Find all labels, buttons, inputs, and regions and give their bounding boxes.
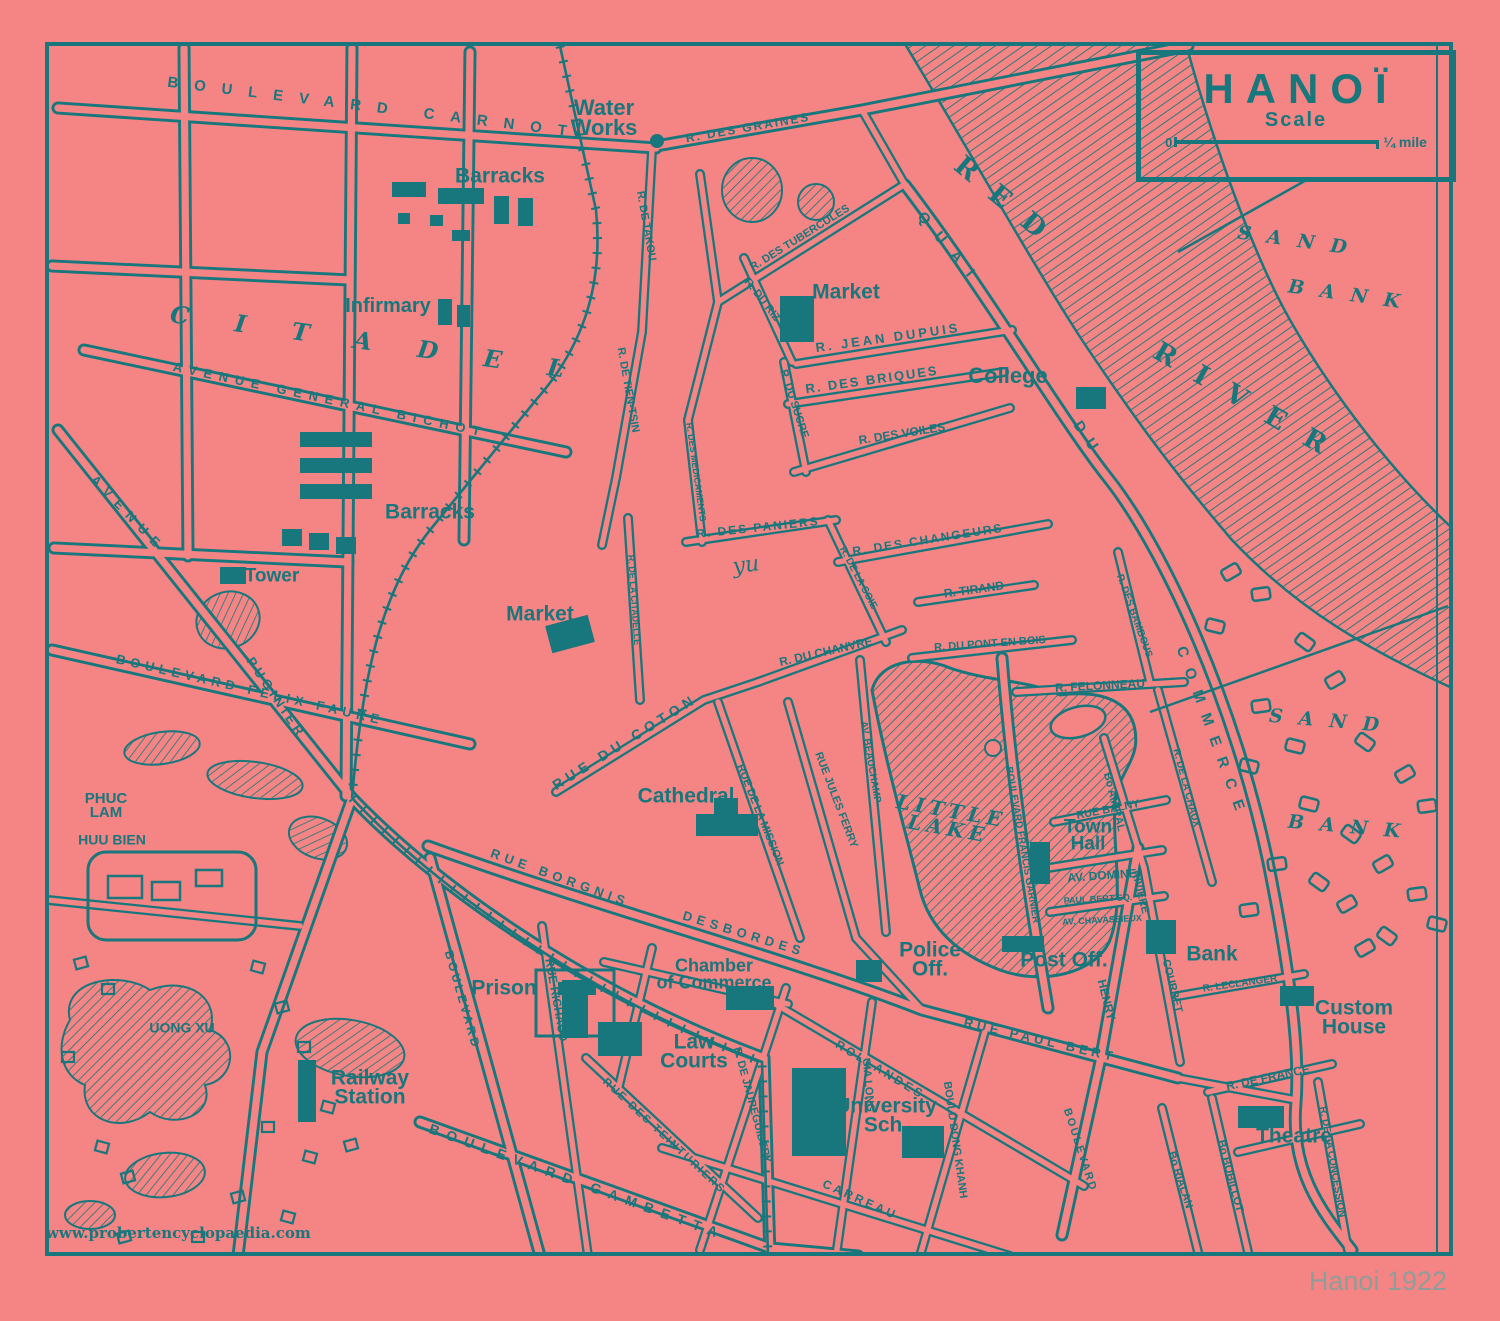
map-label-avenue-general-bichot: AVENUE GENERAL BICHOT bbox=[172, 361, 488, 439]
map-label-r-du-riz: R. DU RIZ bbox=[742, 277, 781, 323]
map-label-infirmary: Infirmary bbox=[345, 297, 431, 315]
map-label-market: Market bbox=[506, 604, 574, 623]
map-label-rue-paul-bert: RUE PAUL BERT bbox=[963, 1017, 1118, 1064]
map-label-r-tirand: R. TIRAND bbox=[943, 580, 1005, 599]
map-label-desbordes: DESBORDES bbox=[681, 910, 806, 959]
map-label-railway-station: Railway Station bbox=[331, 1069, 409, 1108]
map-label-quai: QUAI bbox=[915, 210, 986, 290]
map-label-rue-borgnis: RUE BORGNIS bbox=[489, 847, 631, 908]
page-background: BOULEVARD CARNOTWater WorksR. DES GRAINE… bbox=[0, 0, 1500, 1321]
map-label-riviere: RIVIERE bbox=[1130, 869, 1150, 914]
map-label-cathedral: Cathedral bbox=[638, 786, 735, 805]
map-label-r-du-chanvre: R. DU CHANVRE bbox=[778, 636, 873, 668]
map-label-r-felonneau: R. FELONNEAU bbox=[1055, 678, 1145, 694]
map-label-boulevard: BOULEVARD bbox=[443, 949, 482, 1050]
map-label-custom-house: Custom House bbox=[1315, 999, 1393, 1038]
map-label-r-de-la-chaux: R. DE LA CHAUX bbox=[1171, 748, 1201, 828]
map-label-barracks: Barracks bbox=[385, 502, 475, 521]
map-label-r-des-changeurs: R. DES CHANGEURS bbox=[852, 523, 1005, 558]
map-label-henry: HENRY bbox=[1096, 979, 1117, 1022]
map-label-river: RIVER bbox=[1149, 339, 1351, 470]
map-label-r-des-voiles: R. DES VOILES bbox=[858, 422, 946, 447]
map-label-bo-bobillot: Bo BOBILLOT bbox=[1216, 1139, 1245, 1213]
map-label-paul-bert-sq: PAUL BERT SQ. bbox=[1063, 893, 1132, 905]
map-label-sand: SAND bbox=[1236, 225, 1364, 260]
map-label-red: RED bbox=[949, 153, 1066, 257]
map-caption: Hanoi 1922 bbox=[1247, 1266, 1447, 1297]
map-label-r-des-paniers: R. DES PANIERS bbox=[696, 516, 820, 540]
map-label-huu-bien: HUU BIEN bbox=[78, 834, 146, 847]
map-label-market: Market bbox=[812, 282, 880, 301]
map-label-bould-dong-khanh: BOULD DONG KHANH bbox=[942, 1081, 968, 1199]
map-label-r-des-medicaments: R. DES MEDICAMENTS bbox=[685, 422, 707, 522]
map-label-rollandes: ROLLANDES bbox=[834, 1039, 927, 1101]
map-label-chamber-of-commerce: Chamber of Commerce bbox=[656, 957, 771, 990]
map-label-r-de-la-concession: R. DE LA CONCESSION bbox=[1318, 1106, 1347, 1218]
map-label-boulevard-francis-garnier: BOULEVARD FRANCIS GARNIER bbox=[1004, 766, 1041, 924]
map-label-barracks: Barracks bbox=[455, 166, 545, 185]
map-label-bo-rialan: Bo RIALAN bbox=[1166, 1150, 1194, 1210]
map-label-courbet: COURBET bbox=[1161, 958, 1184, 1013]
map-label-law-courts: Law Courts bbox=[660, 1033, 728, 1072]
map-label-town-hall: Town Hall bbox=[1064, 819, 1112, 854]
labels-layer: BOULEVARD CARNOTWater WorksR. DES GRAINE… bbox=[0, 0, 1500, 1321]
map-label-r-de-france: R. DE FRANCE bbox=[1225, 1064, 1311, 1093]
map-label-r-de-takou: R. DE TAKOU bbox=[635, 190, 657, 261]
map-label-av-chavassieux: AV. CHAVASSIEUX bbox=[1062, 914, 1142, 926]
map-label-r-du-pont-en-bois: R. DU PONT EN BOIS bbox=[934, 635, 1046, 653]
map-label-boulevard-carnot: BOULEVARD CARNOT bbox=[167, 76, 584, 141]
map-label-police-off: Police Off. bbox=[899, 941, 961, 980]
map-label-r-de-jaureguibery: R. DE JAUREGUIBERY bbox=[732, 1046, 773, 1164]
scale-label: Scale bbox=[1141, 109, 1451, 132]
map-label-r-jean-dupuis: R. JEAN DUPUIS bbox=[815, 322, 961, 354]
scale-bar: 0 ¼ mile bbox=[1141, 134, 1451, 150]
map-label-phuc-lam: PHUC LAM bbox=[85, 792, 128, 820]
map-label-carreau: CARREAU bbox=[821, 1178, 899, 1221]
map-label-college: College bbox=[968, 366, 1047, 386]
map-label-boulevard-gambetta: BOULEVARD GAMBETTA bbox=[427, 1122, 726, 1241]
map-label-prison: Prison bbox=[471, 978, 536, 997]
map-label-little-lake: LITTLE LAKE bbox=[892, 792, 1008, 848]
scale-line bbox=[1174, 140, 1379, 144]
map-label-r-des-briques: R. DES BRIQUES bbox=[805, 365, 940, 396]
map-label-r-leclanger: R. LECLANGER bbox=[1202, 974, 1278, 994]
map-label-rue-richaud: RUE RICHAUD bbox=[543, 958, 568, 1043]
map-label-bank: BANK bbox=[1287, 814, 1417, 843]
map-label-rue-jules-ferry: RUE JULES FERRY bbox=[813, 751, 859, 850]
map-label-rue-des-teinturiers: RUE DES TEINTURIERS bbox=[601, 1077, 727, 1196]
map-label-rue-de-la-mission: RUE DE LA MISSION bbox=[735, 763, 785, 867]
map-label-rue-du-coton: RUE DU COTON bbox=[550, 692, 699, 792]
map-label-bank: BANK bbox=[1287, 278, 1417, 313]
watermark: www.probertencyclopaedia.com bbox=[46, 1224, 311, 1242]
map-label-r-des-tubercules: R. DES TUBERCULES bbox=[749, 203, 852, 272]
map-label-du: DU bbox=[1071, 419, 1106, 461]
map-label-water-works: Water Works bbox=[571, 98, 638, 138]
map-label-av-domine: AV. DOMINE bbox=[1067, 868, 1137, 884]
map-label-sand: SAND bbox=[1268, 708, 1395, 736]
map-label-r-de-la-citadelle: R. DE LA CITADELLE bbox=[627, 555, 642, 646]
title-box: HANOÏ Scale 0 ¼ mile bbox=[1136, 50, 1456, 182]
map-label-bank: Bank bbox=[1186, 944, 1237, 963]
map-label-post-off: Post Off. bbox=[1020, 950, 1108, 969]
scale-unit: ¼ mile bbox=[1383, 134, 1427, 150]
map-label-r-des-graines: R. DES GRAINES bbox=[685, 112, 811, 145]
map-label-avenue: AVENUE bbox=[89, 473, 168, 554]
map-label-yu: yu bbox=[731, 554, 760, 578]
map-label-av-beauchamp: AV. BEAUCHAMP bbox=[858, 720, 881, 803]
map-label-tower: Tower bbox=[245, 567, 300, 584]
map-label-university-sch: University Sch. bbox=[835, 1097, 937, 1136]
map-label-boulevard: BOULEVARD bbox=[1062, 1107, 1098, 1193]
scale-zero: 0 bbox=[1165, 135, 1172, 150]
map-label-uong-xu: UONG XU bbox=[149, 1022, 214, 1035]
map-label-r-du-sucre: R. DU SUCRE bbox=[778, 368, 810, 439]
page-title: HANOÏ bbox=[1151, 65, 1451, 113]
map-label-r-des-bambous: R. DES BAMBOUS bbox=[1115, 573, 1154, 659]
map-label-r-de-tien-tsin: R. DE TIEN-TSIN bbox=[616, 347, 641, 434]
